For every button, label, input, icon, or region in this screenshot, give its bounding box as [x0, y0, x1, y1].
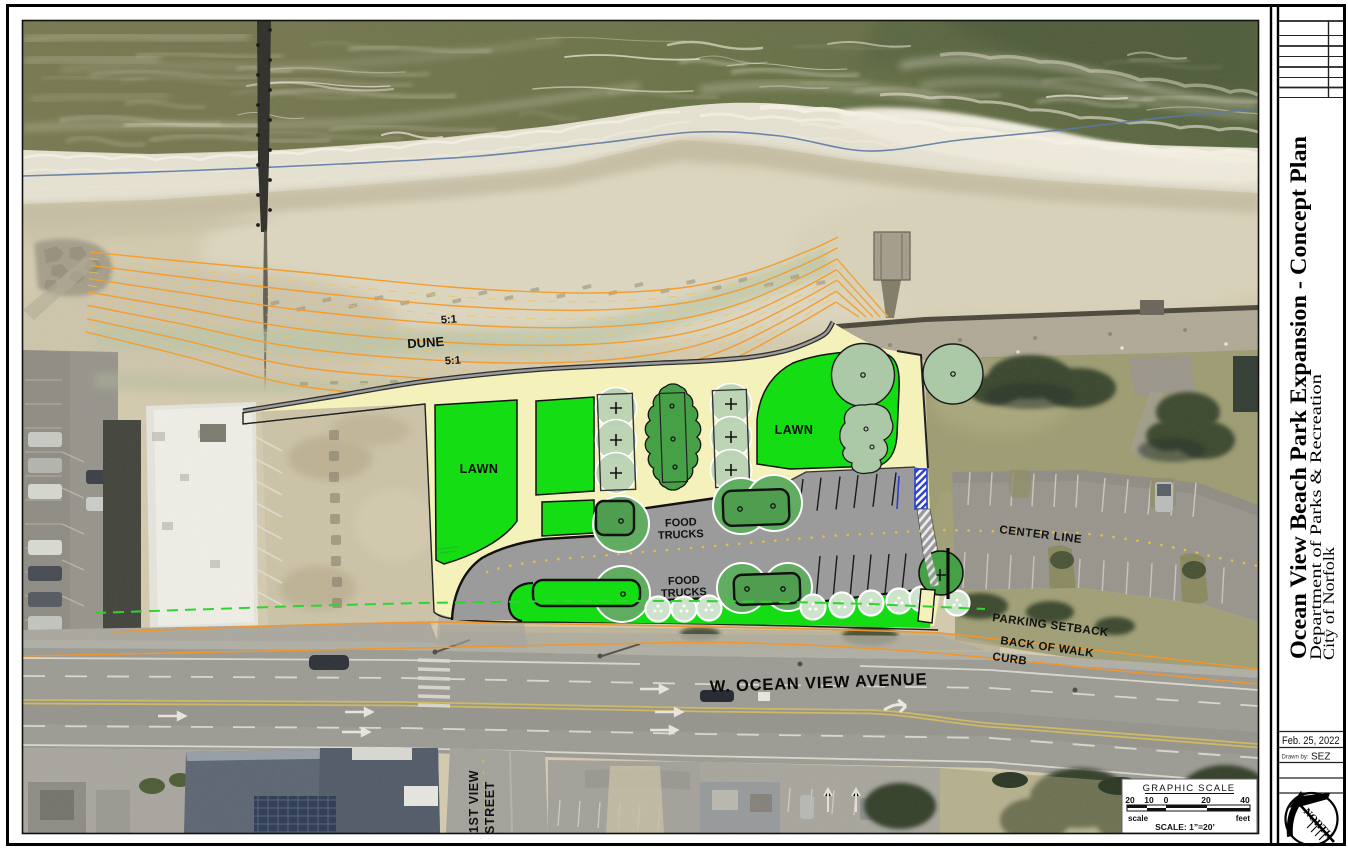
- svg-text:SCALE: 1”=20’: SCALE: 1”=20’: [1155, 822, 1215, 832]
- svg-text:City of Norfolk: City of Norfolk: [1321, 547, 1338, 660]
- svg-text:STREET: STREET: [483, 781, 497, 834]
- svg-text:LAWN: LAWN: [775, 423, 814, 437]
- svg-text:Drawn by:: Drawn by:: [1282, 755, 1309, 761]
- svg-text:40: 40: [1240, 795, 1250, 805]
- svg-text:20: 20: [1201, 795, 1211, 805]
- svg-text:1ST VIEW: 1ST VIEW: [467, 770, 481, 833]
- svg-text:5:1: 5:1: [444, 354, 461, 367]
- svg-text:5:1: 5:1: [440, 313, 457, 326]
- svg-text:SEZ: SEZ: [1311, 752, 1330, 763]
- svg-text:DUNE: DUNE: [407, 334, 445, 352]
- svg-text:TRUCKS: TRUCKS: [661, 586, 707, 600]
- svg-text:feet: feet: [1236, 814, 1251, 823]
- svg-text:scale: scale: [1128, 814, 1149, 823]
- svg-text:0: 0: [1164, 795, 1169, 805]
- svg-text:LAWN: LAWN: [460, 462, 499, 476]
- svg-text:GRAPHIC SCALE: GRAPHIC SCALE: [1143, 783, 1236, 794]
- svg-text:TRUCKS: TRUCKS: [658, 528, 704, 542]
- svg-text:20: 20: [1125, 795, 1135, 805]
- svg-text:Feb. 25, 2022: Feb. 25, 2022: [1282, 735, 1340, 747]
- svg-text:10: 10: [1144, 795, 1154, 805]
